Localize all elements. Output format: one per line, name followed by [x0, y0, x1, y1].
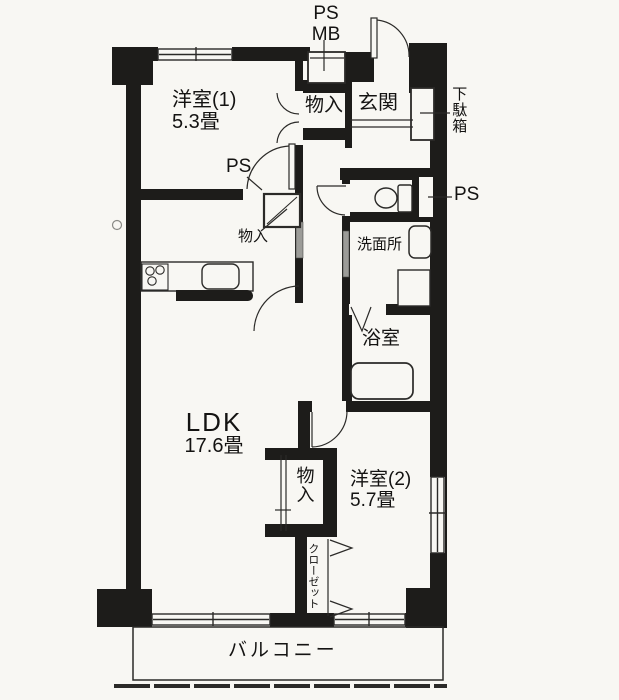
ldk-balcony-window [152, 612, 270, 626]
sliding-doors [296, 222, 349, 277]
washbasin [409, 226, 431, 258]
kitchen-counter [141, 262, 253, 301]
bathtub [351, 363, 413, 399]
toilet-fixture [375, 185, 412, 212]
hallway-ldk-door [254, 286, 299, 331]
label-ldk: LDK 17.6畳 [168, 408, 260, 458]
shoe-cabinet-box [411, 88, 434, 140]
label-room1: 洋室(1) 5.3畳 [172, 90, 236, 133]
counter-front [176, 290, 253, 301]
ldk-size: 17.6畳 [168, 436, 260, 458]
room2-east-window [429, 477, 446, 553]
storage-center-doors [275, 455, 291, 531]
room1-door [247, 144, 295, 189]
toilet-door [317, 186, 346, 215]
washing-machine-pan [398, 270, 430, 306]
room1-name: 洋室(1) [172, 90, 236, 112]
label-balcony: バルコニー [228, 641, 338, 662]
label-room2: 洋室(2) 5.7畳 [350, 470, 411, 511]
label-ps-mb: PS MB [303, 4, 349, 45]
room1-top-window [158, 47, 232, 61]
room2-door [312, 411, 347, 447]
closet-folding-door [328, 539, 352, 617]
small-circle-mark [113, 221, 122, 230]
entrance-step [350, 120, 413, 127]
kitchen-sink [202, 264, 239, 289]
label-entrance: 玄関 [358, 93, 398, 115]
hallway-storage-box [264, 194, 300, 227]
ldk-name: LDK [168, 408, 260, 436]
floorplan: PS MB 洋室(1) 5.3畳 物入 玄関 下駄箱 PS PS 物入 洗面所 … [0, 0, 619, 700]
label-washroom: 洗面所 [357, 237, 402, 253]
label-mb-top: MB [303, 25, 349, 46]
ps-mb-shaft [308, 40, 345, 83]
label-ps-right: PS [454, 185, 479, 206]
label-ps-room1: PS [226, 157, 251, 178]
label-storage-top: 物入 [305, 96, 343, 117]
label-bathroom: 浴室 [362, 329, 400, 350]
ps-room1-leader [247, 177, 262, 190]
washroom-sliding-door [343, 231, 349, 277]
room2-size: 5.7畳 [350, 491, 411, 512]
label-ps-top: PS [303, 4, 349, 25]
room1-size: 5.3畳 [172, 112, 236, 134]
label-closet: クローゼット [306, 543, 318, 615]
label-storage-center: 物入 [294, 466, 313, 526]
room2-name: 洋室(2) [350, 470, 411, 491]
label-hallway-storage: 物入 [238, 229, 268, 245]
label-shoe-cabinet: 下駄箱 [450, 86, 466, 152]
room2-balcony-window [334, 612, 405, 626]
